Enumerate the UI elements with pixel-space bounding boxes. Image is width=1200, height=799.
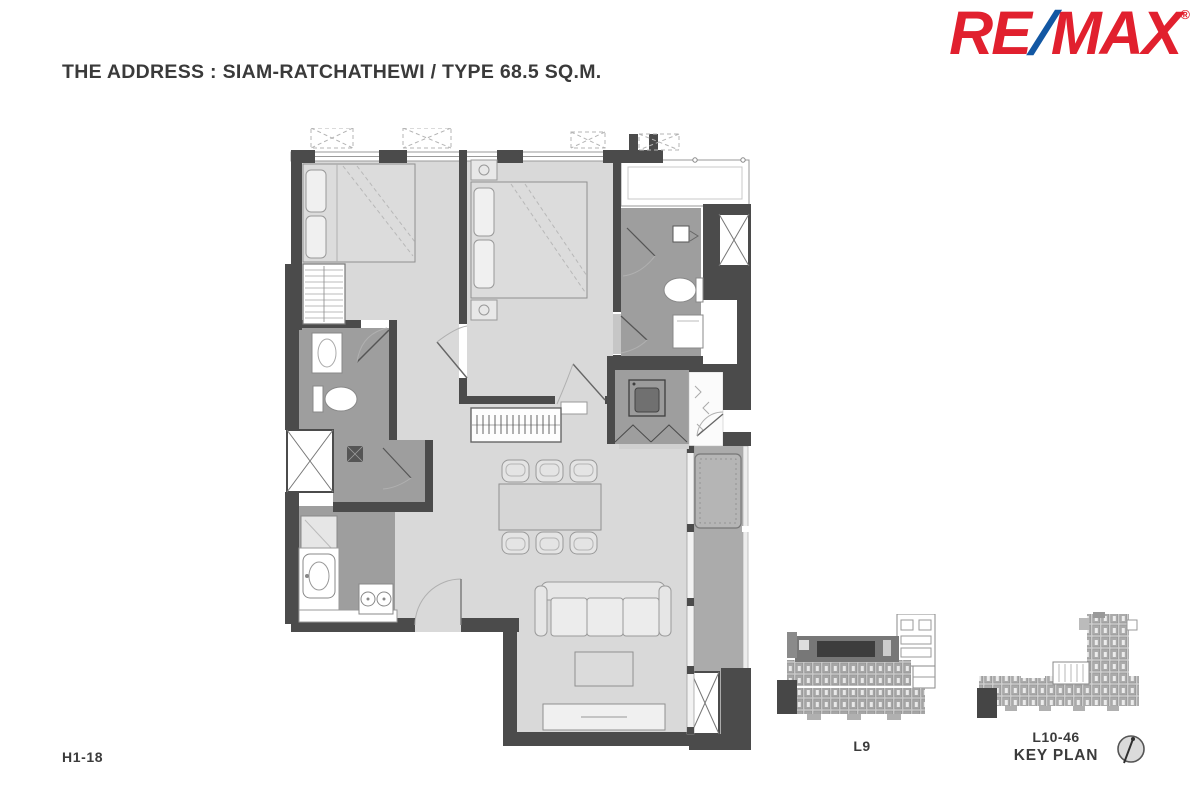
logo-re: RE	[949, 4, 1030, 62]
ac-ledge-dashed	[311, 128, 679, 150]
ac-condenser	[695, 454, 741, 528]
toilet-2-tank	[313, 386, 323, 412]
pillow	[306, 170, 326, 212]
page-title: THE ADDRESS : SIAM-RATCHATHEWI / TYPE 68…	[62, 61, 602, 84]
pillow	[474, 240, 494, 288]
sofa-cushion	[623, 598, 659, 636]
sofa-cushion	[551, 598, 587, 636]
sofa-cushion	[587, 598, 623, 636]
key-plan-l9-label: L9	[777, 738, 947, 754]
stove	[359, 584, 393, 614]
dining-table	[499, 484, 601, 530]
remax-logo: RE / MAX ®	[856, 4, 1190, 66]
dining-set	[499, 460, 601, 554]
sofa-back	[541, 582, 665, 600]
toilet-1-tank	[696, 278, 703, 302]
coffee-table	[575, 652, 633, 686]
key-plan-l9-map	[777, 614, 947, 732]
ac-ledge	[621, 158, 749, 206]
compass-icon	[1112, 732, 1152, 772]
vanity-1	[673, 315, 703, 348]
logo-registered-mark: ®	[1180, 8, 1190, 21]
floor-plan	[285, 128, 755, 778]
toilet-1	[664, 278, 696, 302]
nightstand	[471, 160, 497, 180]
foyer	[689, 372, 723, 446]
pillow	[474, 188, 494, 236]
pillow	[306, 216, 326, 258]
logo-max: MAX	[1051, 4, 1181, 62]
highlighted-unit	[977, 688, 997, 718]
toilet-2	[325, 387, 357, 411]
brochure-page: THE ADDRESS : SIAM-RATCHATHEWI / TYPE 68…	[0, 0, 1200, 799]
windows-top	[291, 152, 625, 161]
nightstand	[471, 300, 497, 320]
balcony-sliding-door	[687, 446, 694, 734]
shower-control	[673, 226, 689, 242]
shower-room-floor	[333, 440, 425, 504]
bedroom-1	[471, 160, 587, 320]
key-plan-l10-46-map	[975, 612, 1143, 724]
unit-code: H1-18	[62, 749, 103, 765]
